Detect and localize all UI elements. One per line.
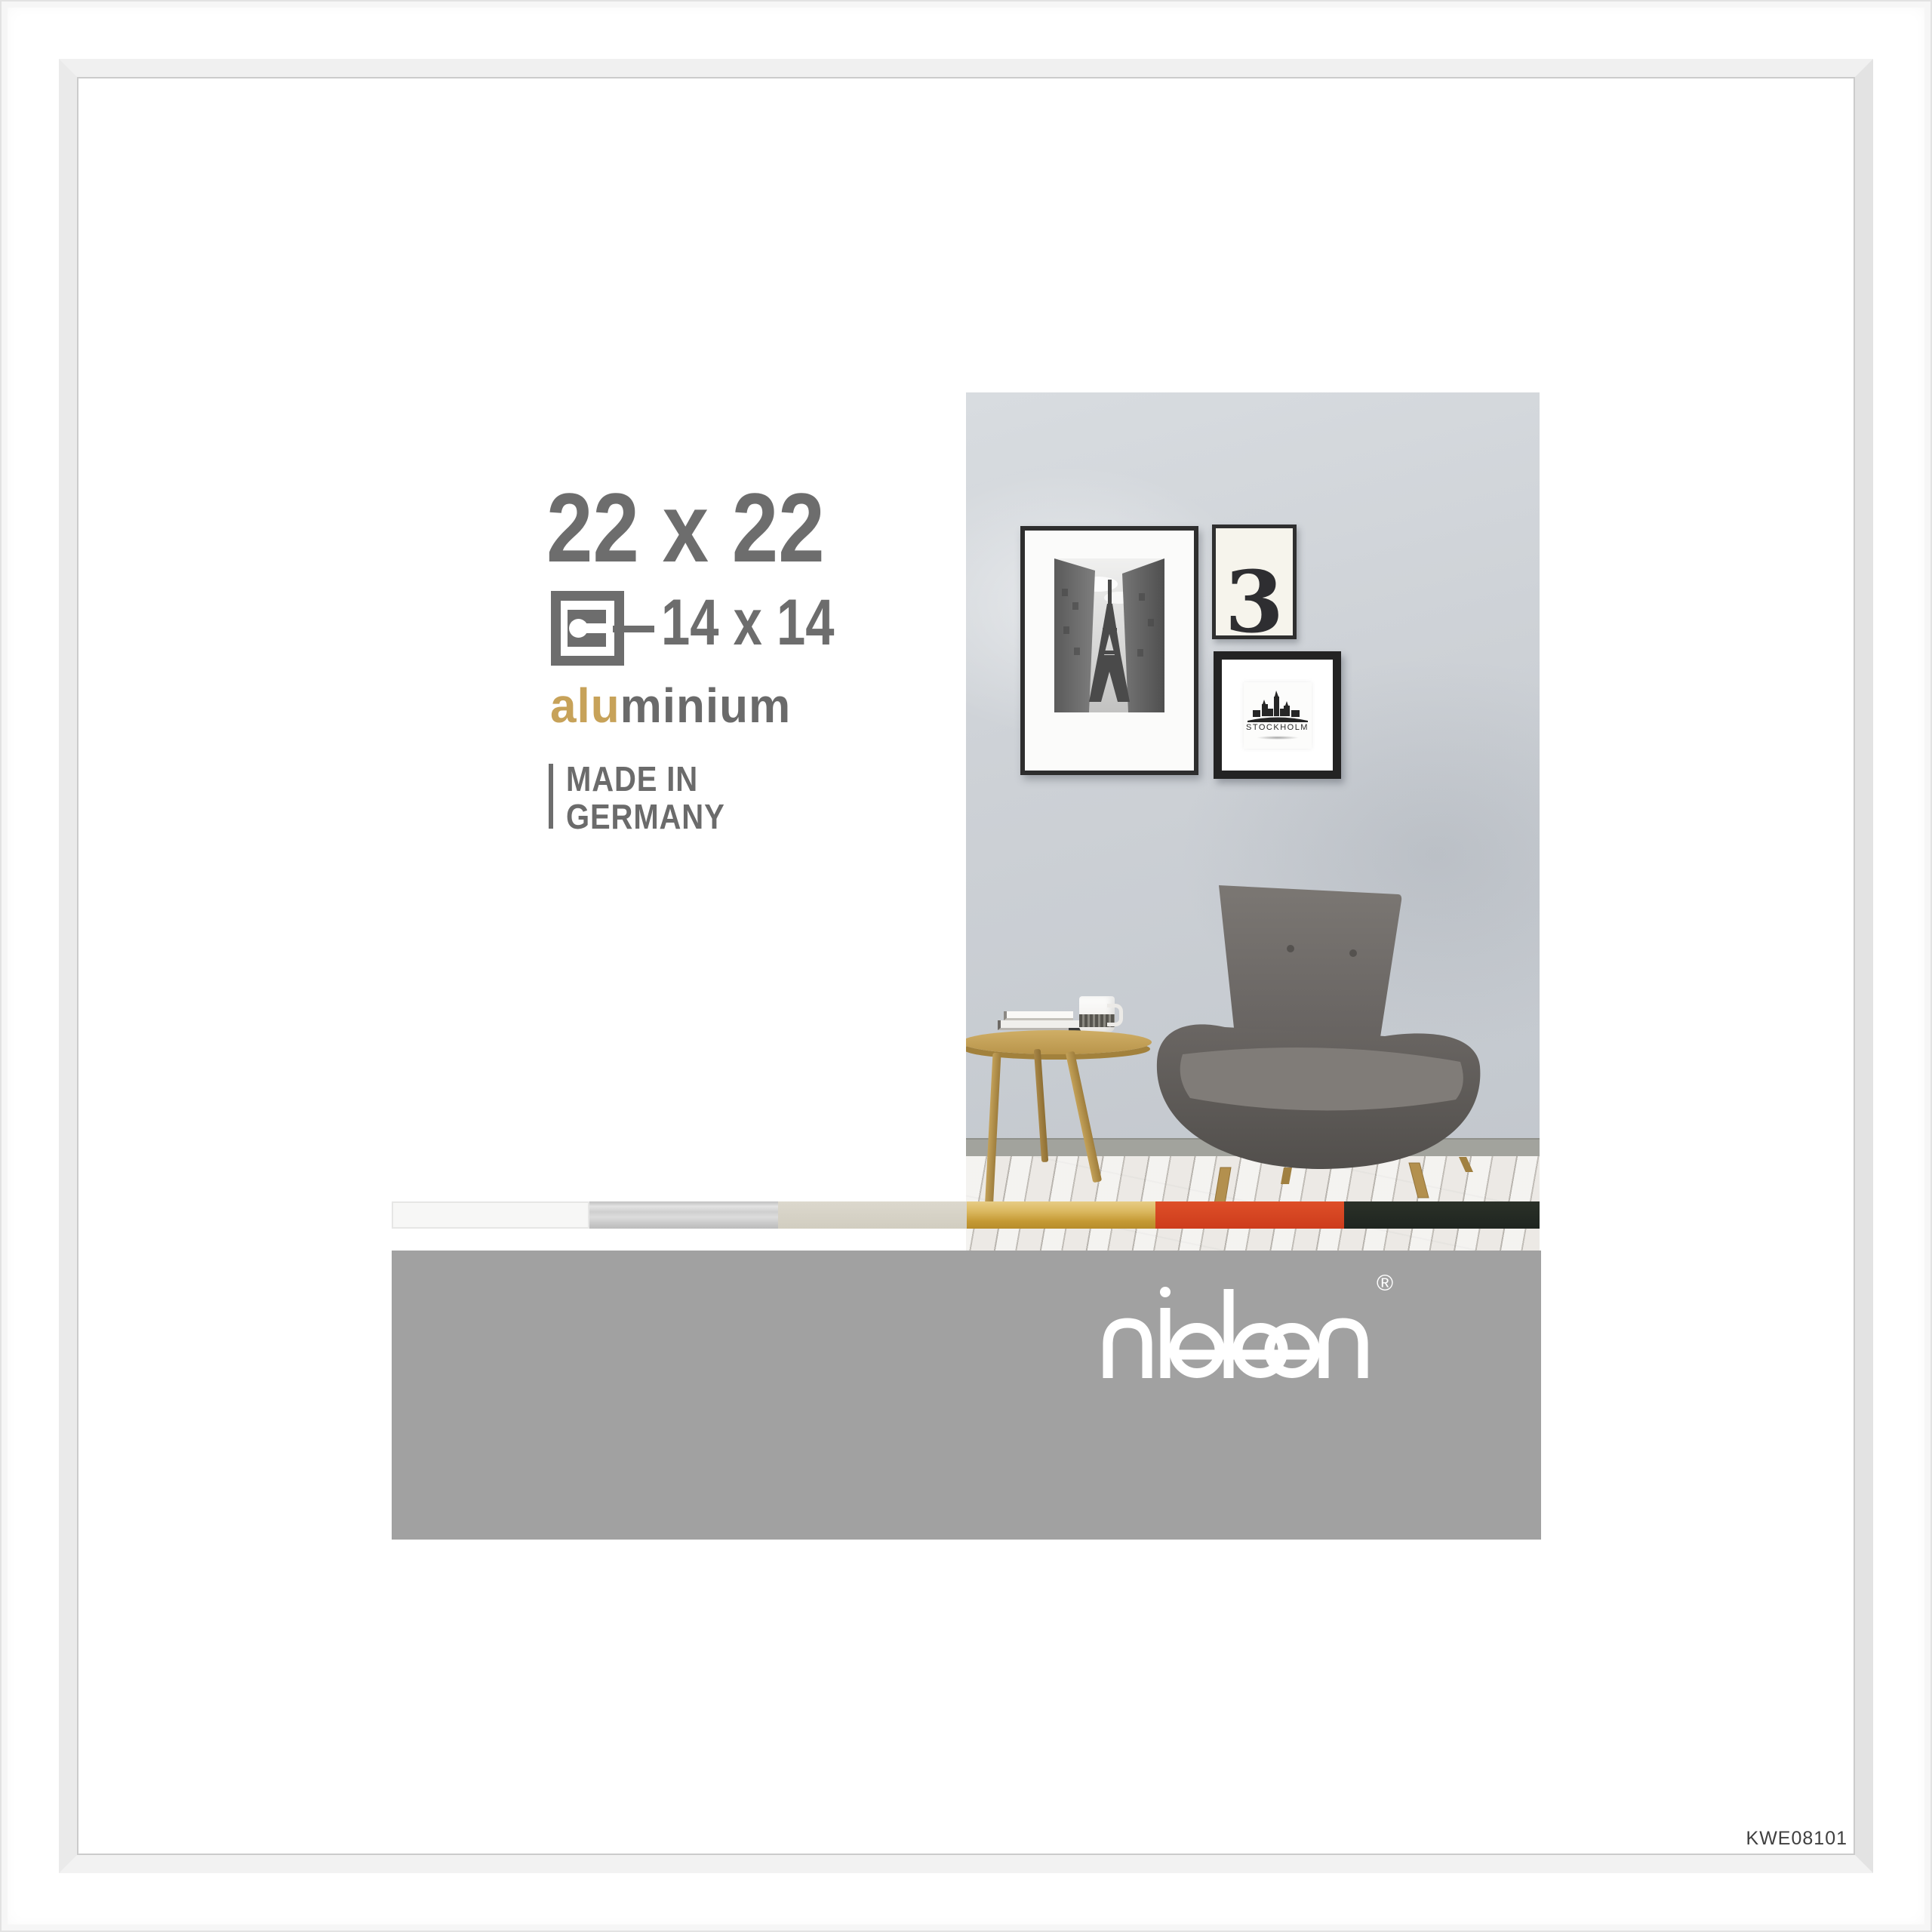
outer-size-label: 22 x 22: [546, 478, 825, 577]
number-print-text: 3: [1225, 570, 1284, 635]
icon-notch: [582, 623, 606, 633]
finish-swatch-strip: [392, 1201, 1540, 1229]
material-label: aluminium: [550, 681, 791, 730]
swatch-silver: [589, 1201, 778, 1229]
product-image: 22 x 22 14 x 14 aluminium MADE IN GERMAN…: [0, 0, 1932, 1932]
book: [1004, 1011, 1073, 1020]
swatch-black-green: [1344, 1201, 1540, 1229]
eiffel-photo: [1054, 558, 1164, 712]
eiffel-picture-frame: [1020, 526, 1198, 775]
chair-back: [1219, 885, 1401, 1047]
material-label-highlight: alu: [550, 678, 620, 733]
stockholm-skyline-icon: [1246, 691, 1309, 722]
registered-trademark: ®: [1377, 1271, 1393, 1297]
stockholm-print-shadow: [1257, 736, 1299, 740]
icon-stem-line: [613, 626, 654, 632]
stockholm-print-text: STOCKHOLM: [1246, 723, 1309, 732]
swatch-champagne: [778, 1201, 967, 1229]
side-table-top: [966, 1030, 1152, 1054]
swatch-red-orange: [1155, 1201, 1344, 1229]
mug-handle: [1107, 1004, 1123, 1026]
armchair: [1136, 872, 1506, 1207]
stockholm-print-frame: STOCKHOLM: [1214, 651, 1341, 779]
chair-cushion: [1180, 1048, 1463, 1110]
mug: [1079, 996, 1115, 1032]
brand-banner: nielsen ®: [392, 1251, 1541, 1540]
chair-front-legs: [1214, 1163, 1429, 1204]
made-in-rule: [549, 764, 553, 829]
made-in-label: MADE IN GERMANY: [566, 760, 725, 835]
stockholm-print: STOCKHOLM: [1244, 682, 1312, 749]
number-print-frame: 3: [1212, 525, 1297, 639]
frame-cross-section-icon: [551, 591, 624, 666]
brand-name: nielsen: [392, 1251, 392, 1251]
sku-code: KWE08101: [1621, 1828, 1847, 1850]
mat-size-label: 14 x 14: [661, 590, 835, 655]
room-photo: 3 STOCKHOLM: [966, 392, 1540, 1251]
swatch-white: [392, 1201, 589, 1229]
material-label-rest: minium: [620, 678, 792, 733]
made-in-line2: GERMANY: [566, 798, 725, 835]
made-in-line1: MADE IN: [566, 760, 725, 798]
swatch-gold: [967, 1201, 1155, 1229]
nielsen-logo: [1102, 1285, 1398, 1385]
